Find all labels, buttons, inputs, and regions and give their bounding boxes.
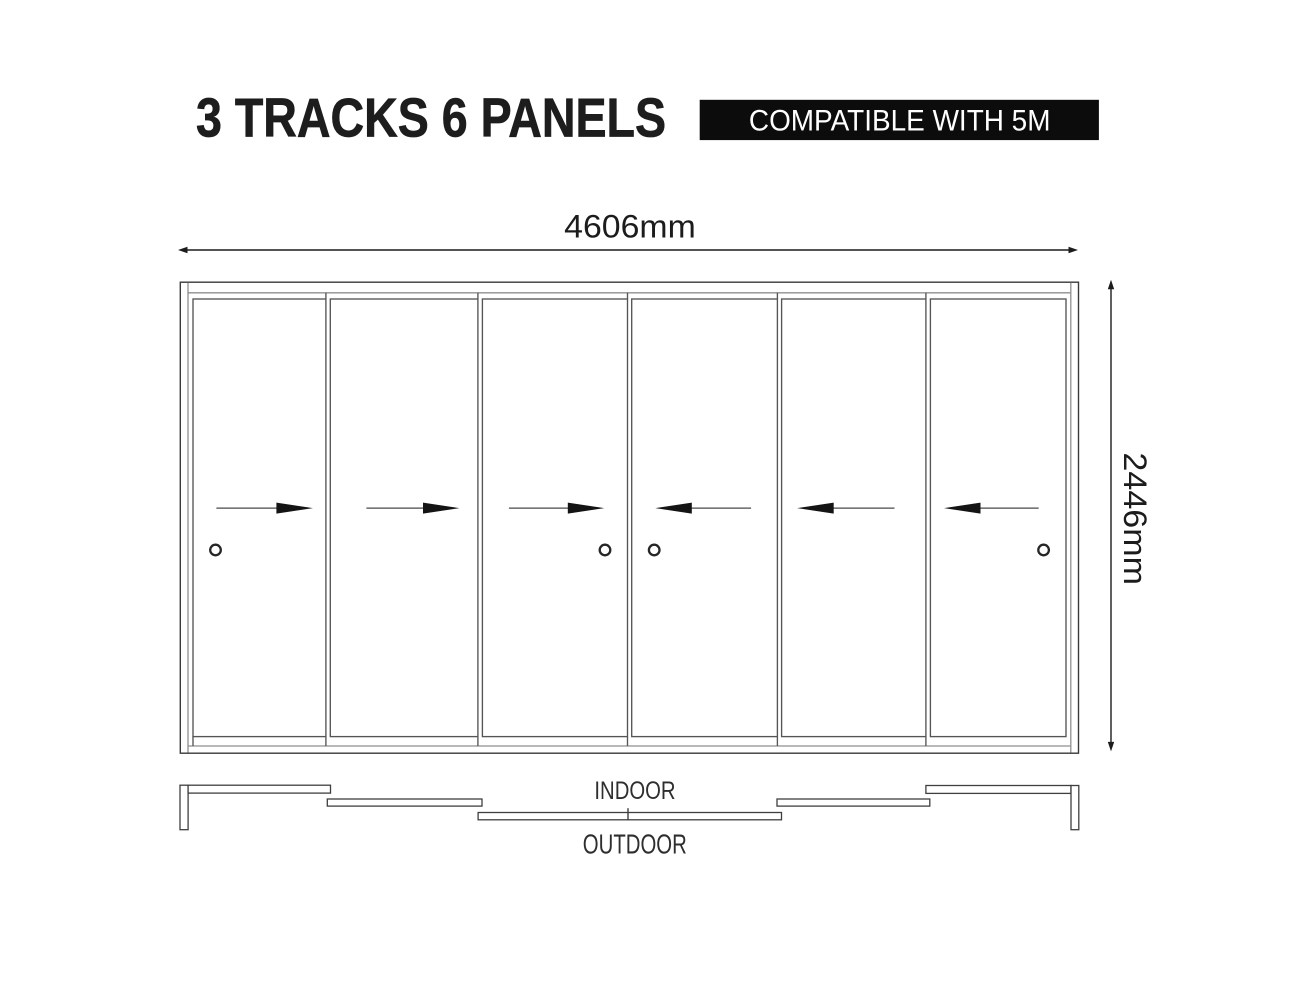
svg-text:OUTDOOR: OUTDOOR: [583, 829, 687, 860]
svg-text:COMPATIBLE WITH 5M: COMPATIBLE WITH 5M: [749, 105, 1051, 138]
svg-text:INDOOR: INDOOR: [594, 777, 675, 805]
svg-text:4606mm: 4606mm: [564, 208, 696, 244]
svg-text:3 TRACKS 6 PANELS: 3 TRACKS 6 PANELS: [196, 88, 666, 149]
svg-text:2446mm: 2446mm: [1117, 452, 1153, 585]
